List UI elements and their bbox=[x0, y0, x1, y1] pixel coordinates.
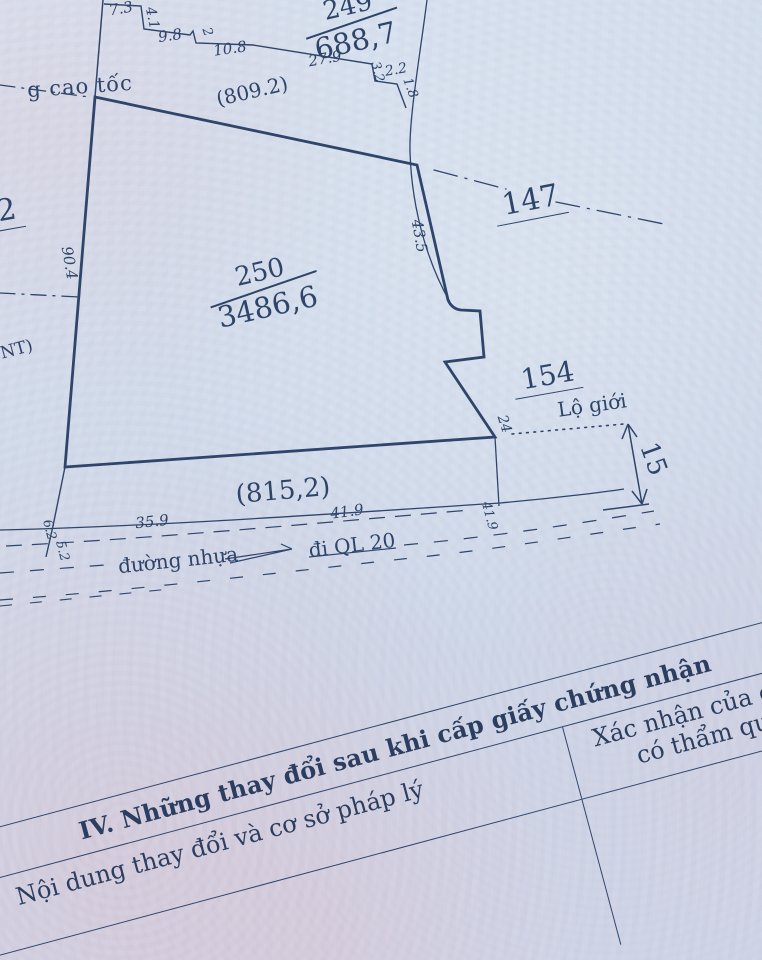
dashdot-147-left bbox=[434, 170, 506, 189]
road-dashes-2b bbox=[404, 511, 654, 545]
bottom-edge-total: (815,2) bbox=[235, 474, 332, 508]
dashdot-147-right bbox=[556, 202, 664, 224]
dim-41-9: 41.9 bbox=[329, 502, 364, 522]
dim-10-8: 10.8 bbox=[212, 39, 247, 59]
road-short-segment bbox=[603, 504, 649, 510]
dim-35-9: 35.9 bbox=[135, 513, 170, 531]
dim-43-5: 43.5 bbox=[409, 218, 430, 254]
dim-7-3: 7.3 bbox=[108, 0, 134, 18]
dim-4-1: 4.1 bbox=[143, 6, 161, 31]
setback-dotted-line bbox=[512, 424, 624, 434]
dim-9-8: 9.8 bbox=[157, 27, 183, 45]
dim-90-4: 90.4 bbox=[59, 245, 80, 281]
corner-drop-line bbox=[495, 437, 499, 506]
road-dashes-2a bbox=[0, 564, 118, 573]
land-certificate-page: g cao tốc 249 688,7 7.3 4.1 9.8 2 10.8 2… bbox=[0, 0, 762, 960]
road-dashes-4 bbox=[0, 589, 170, 606]
dashdot-mid-left bbox=[0, 293, 79, 297]
dim-2-2: 2.2 bbox=[384, 61, 408, 79]
east-thin-boundary bbox=[410, 0, 450, 302]
